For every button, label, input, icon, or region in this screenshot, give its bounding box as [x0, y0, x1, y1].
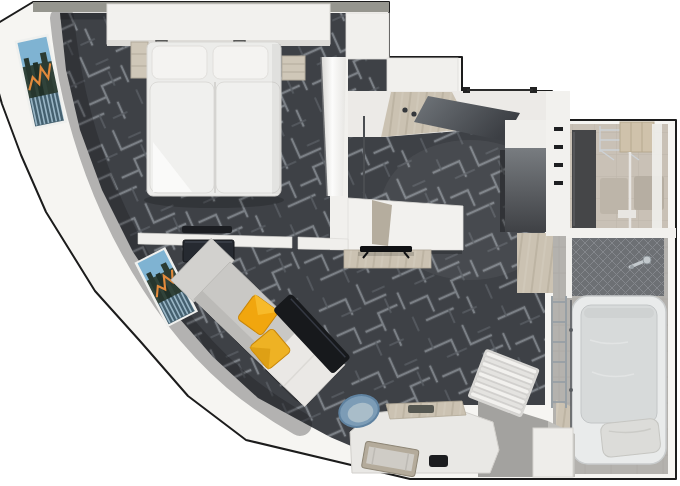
headboard-shelf [107, 4, 330, 44]
entry-closet-side [387, 58, 458, 93]
floor-plan [0, 0, 680, 486]
entry-closet-top [346, 13, 389, 59]
wardrobe-dark [572, 130, 596, 228]
television [360, 246, 412, 252]
pillow-right [213, 46, 268, 79]
closet-shower-wall [566, 228, 676, 238]
double-bed [147, 42, 281, 196]
tray-slot [408, 405, 434, 413]
vanity-cabinet [533, 428, 573, 477]
phone [429, 455, 448, 467]
bathtub [572, 296, 666, 464]
tv-block [348, 198, 463, 250]
shower-left-wall [566, 238, 572, 298]
shower-floor [572, 238, 664, 296]
pillow-left [152, 46, 207, 79]
closet-counter-1 [600, 178, 628, 214]
wood-floor-bath-hall [517, 233, 553, 293]
walk-in-closet [570, 122, 668, 228]
half-wall-right [298, 237, 348, 250]
bath-pillow [600, 418, 661, 458]
closet-glass-strip [652, 124, 662, 228]
duvet-right [216, 82, 280, 193]
shower [572, 238, 664, 296]
floor-plan-image [0, 0, 680, 486]
luggage-rack [182, 226, 232, 233]
closet-mat [618, 210, 636, 218]
nightstand-left [131, 42, 148, 78]
closet-wood-shelf [620, 122, 654, 152]
nightstand-right [282, 56, 305, 80]
tub-basin [581, 305, 657, 423]
